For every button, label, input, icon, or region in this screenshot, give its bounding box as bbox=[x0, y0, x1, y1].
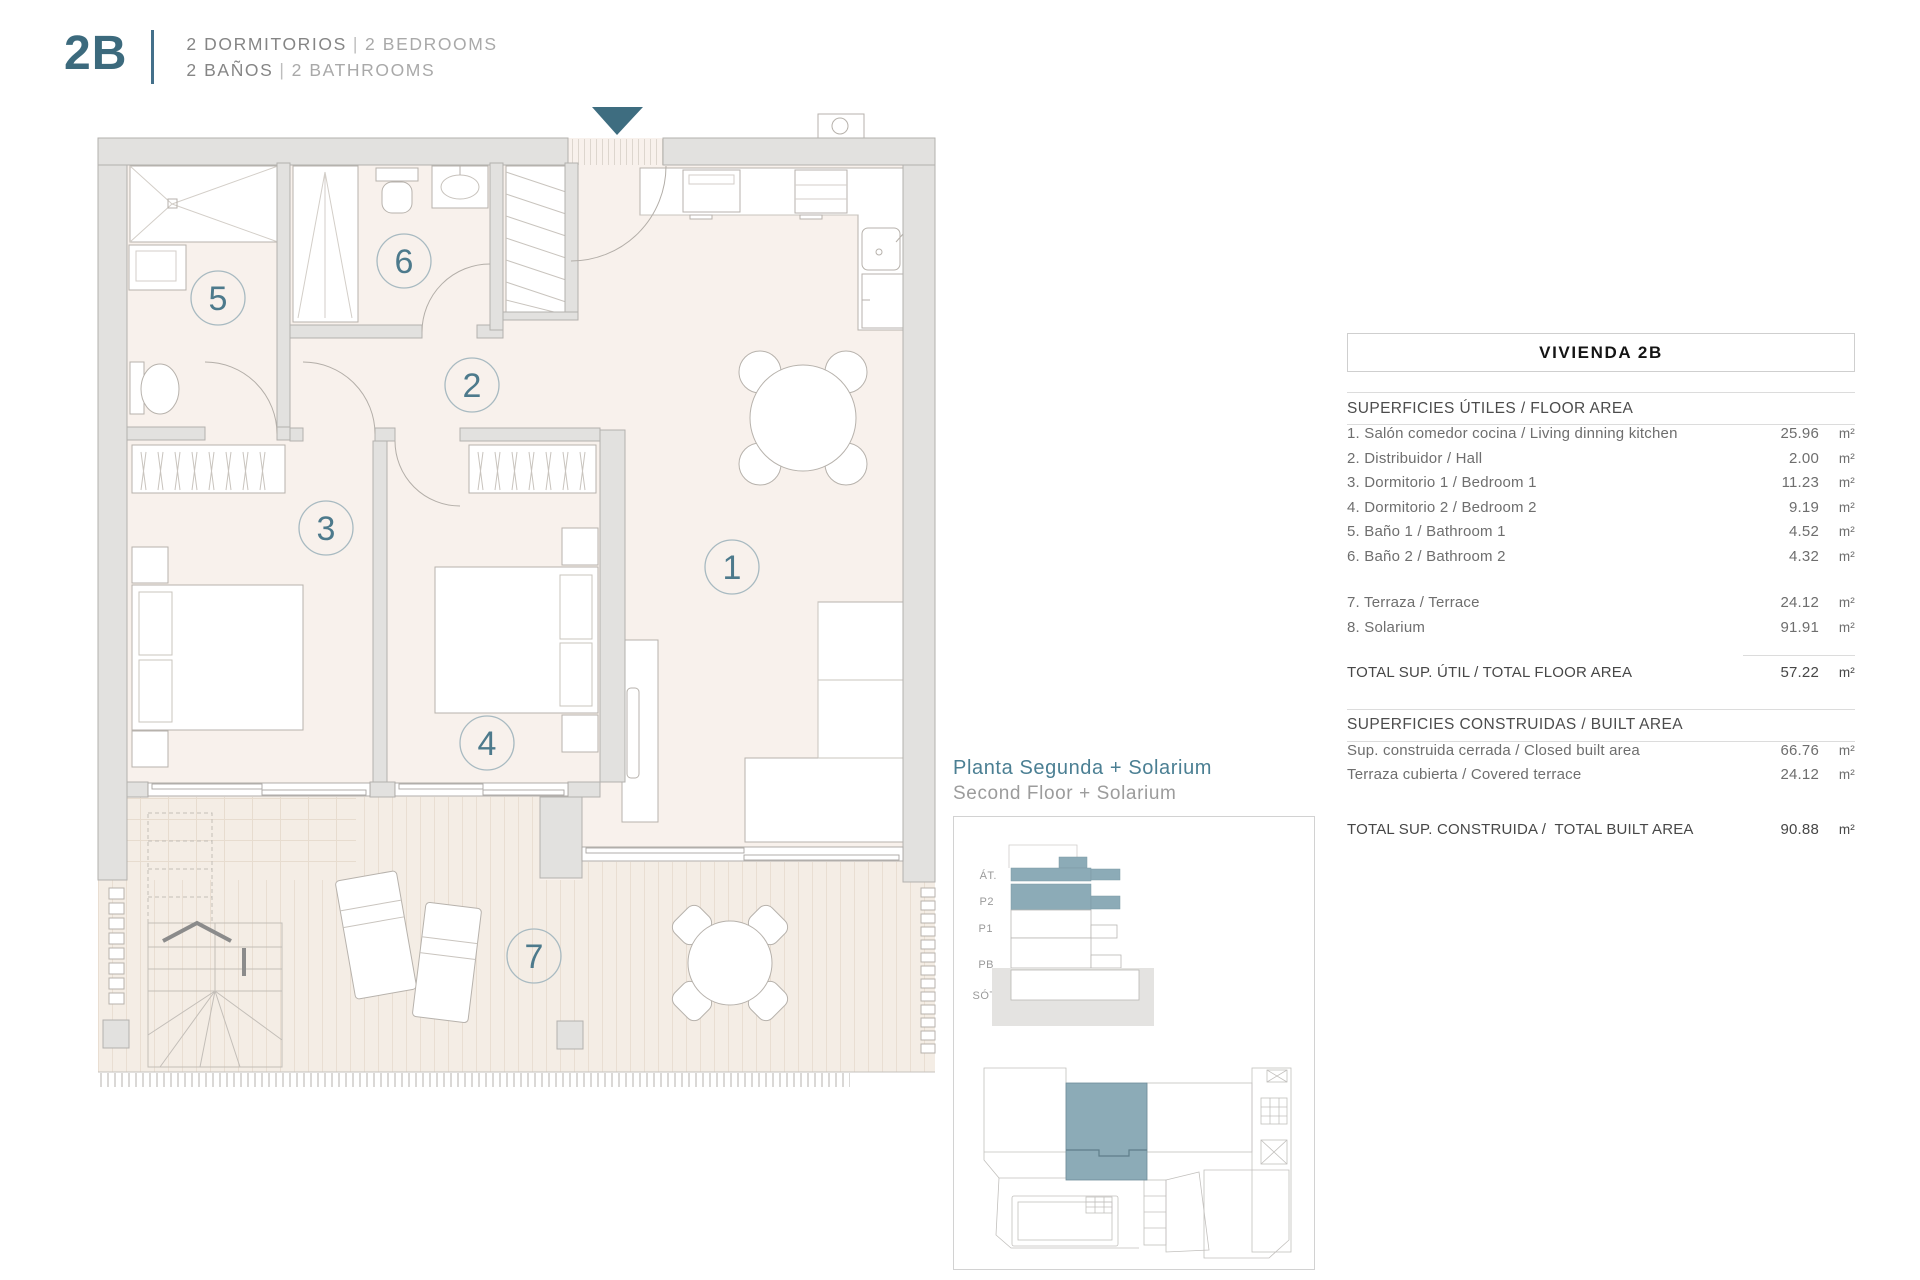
table-title: VIVIENDA 2B bbox=[1347, 333, 1855, 372]
svg-text:7: 7 bbox=[525, 938, 544, 976]
table-row: 6. Baño 2 / Bathroom 24.32m² bbox=[1347, 548, 1855, 573]
highlighted-floors bbox=[1011, 857, 1120, 910]
inset-title-en: Second Floor + Solarium bbox=[953, 781, 1212, 806]
table-row: 4. Dormitorio 2 / Bedroom 29.19m² bbox=[1347, 499, 1855, 524]
built-area-header: SUPERFICIES CONSTRUIDAS / BUILT AREA bbox=[1347, 710, 1855, 741]
svg-text:1: 1 bbox=[723, 549, 742, 587]
svg-text:3: 3 bbox=[317, 510, 336, 548]
table-row: Sup. construida cerrada / Closed built a… bbox=[1347, 742, 1855, 767]
svg-text:6: 6 bbox=[395, 243, 414, 281]
inset-diagrams: ÁT. P2 P1 PB SÓT. bbox=[954, 817, 1314, 1269]
bedroom1-furniture bbox=[132, 445, 303, 767]
building-section: ÁT. P2 P1 PB SÓT. bbox=[973, 845, 1154, 1026]
dining-table bbox=[739, 351, 867, 485]
tv-unit bbox=[622, 640, 658, 822]
built-area-total: TOTAL SUP. CONSTRUIDA / TOTAL BUILT AREA… bbox=[1347, 821, 1855, 846]
level-label: PB bbox=[978, 959, 994, 971]
inset-titles: Planta Segunda + Solarium Second Floor +… bbox=[953, 755, 1212, 806]
level-label: P1 bbox=[979, 923, 993, 935]
inset-title-es: Planta Segunda + Solarium bbox=[953, 755, 1212, 781]
floor-area-total: TOTAL SUP. ÚTIL / TOTAL FLOOR AREA57.22m… bbox=[1347, 664, 1855, 689]
svg-text:5: 5 bbox=[209, 280, 228, 318]
svg-text:2: 2 bbox=[463, 367, 482, 405]
lower-floors bbox=[1011, 910, 1121, 968]
level-label: P2 bbox=[980, 896, 994, 908]
svg-text:4: 4 bbox=[478, 725, 497, 763]
table-row: 5. Baño 1 / Bathroom 14.52m² bbox=[1347, 523, 1855, 548]
table-row: 8. Solarium91.91m² bbox=[1347, 619, 1855, 644]
table-row: 3. Dormitorio 1 / Bedroom 111.23m² bbox=[1347, 474, 1855, 499]
entrance-threshold bbox=[568, 139, 663, 165]
hall-wardrobe bbox=[506, 166, 566, 316]
table-row: 2. Distribuidor / Hall2.00m² bbox=[1347, 450, 1855, 475]
table-row: 7. Terraza / Terrace24.12m² bbox=[1347, 594, 1855, 619]
terrace-tiles bbox=[127, 797, 356, 880]
floor-area-header: SUPERFICIES ÚTILES / FLOOR AREA bbox=[1347, 393, 1855, 424]
highlighted-unit bbox=[1066, 1083, 1147, 1180]
site-plan bbox=[984, 1068, 1291, 1258]
level-label: ÁT. bbox=[980, 869, 997, 882]
area-table: VIVIENDA 2B SUPERFICIES ÚTILES / FLOOR A… bbox=[1347, 333, 1855, 845]
table-row: 1. Salón comedor cocina / Living dinning… bbox=[1347, 425, 1855, 450]
entrance-arrow bbox=[592, 107, 643, 135]
terrace-railing bbox=[98, 1073, 850, 1089]
table-row: Terraza cubierta / Covered terrace24.12m… bbox=[1347, 766, 1855, 791]
location-inset: ÁT. P2 P1 PB SÓT. bbox=[953, 816, 1315, 1270]
floorplan-page: { "header": { "unit": "2B", "rooms_es": … bbox=[0, 0, 1920, 1280]
